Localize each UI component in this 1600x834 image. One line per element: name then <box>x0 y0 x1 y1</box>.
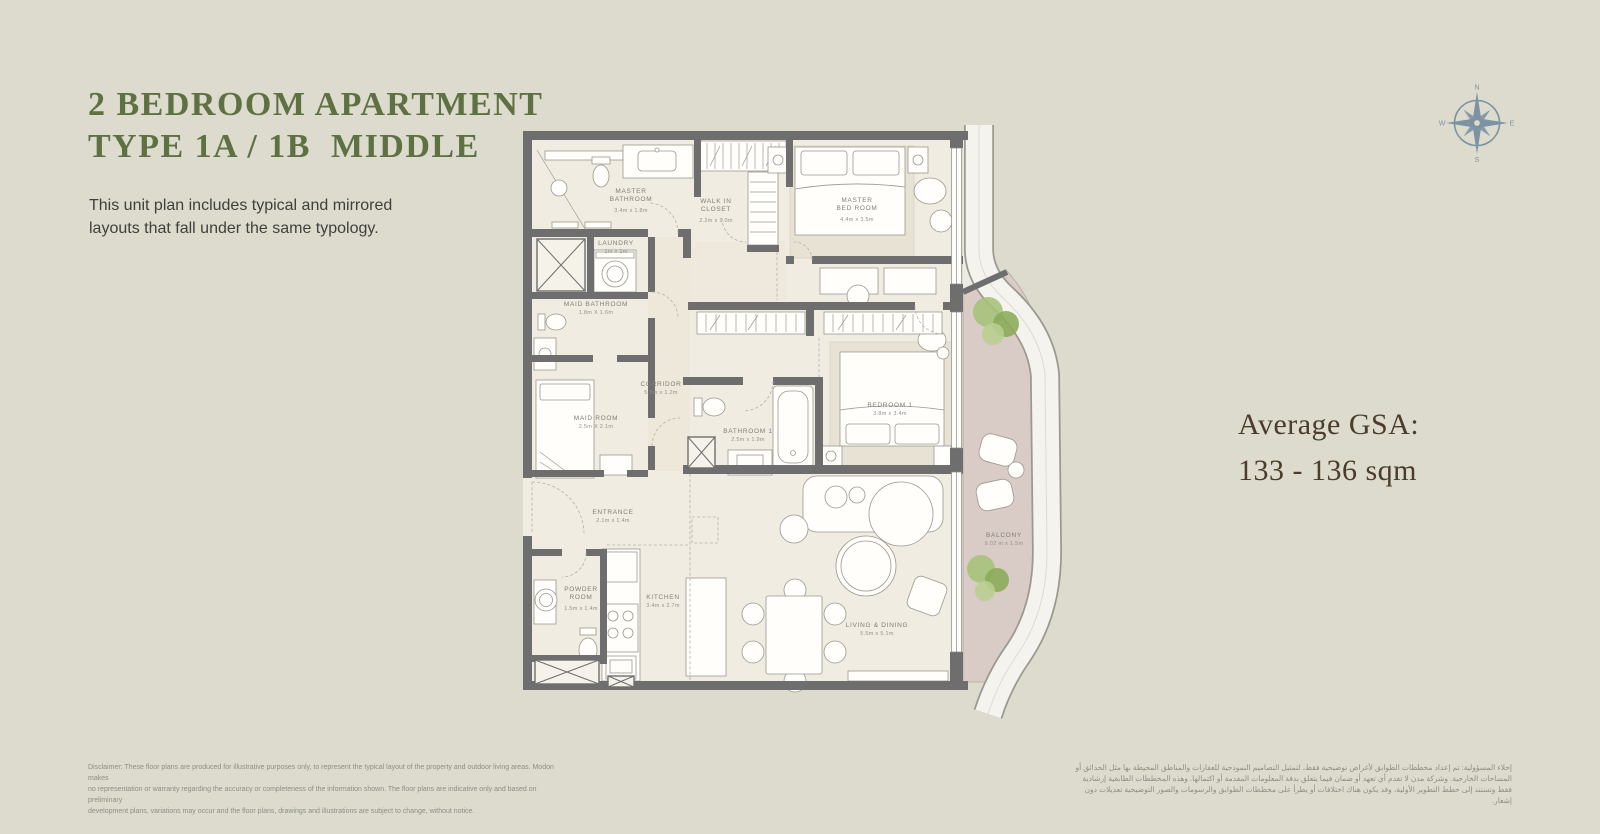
windows <box>952 148 962 652</box>
room-label-entrance: ENTRANCE <box>592 509 633 516</box>
room-dims-walk-in-closet: 2.2m x 1.0m <box>699 218 733 224</box>
room-dims-maid-bathroom: 1.8m X 1.6m <box>579 310 614 316</box>
typology-note-line-1: This unit plan includes typical and mirr… <box>89 194 392 217</box>
compass-s-label: S <box>1475 157 1480 163</box>
room-dims-maid-room: 2.5m X 2.1m <box>579 424 614 430</box>
room-label-balcony: BALCONY <box>986 532 1022 539</box>
disclaimer-line-ar: فقط وتستند إلى خطط التطوير الأولية، وقد … <box>1072 784 1512 806</box>
room-dims-master-bedroom: 4.4m x 3.5m <box>840 217 874 223</box>
room-dims-bedroom-1: 3.8m x 3.4m <box>873 411 907 417</box>
room-label-master-bathroom: MASTERBATHROOM <box>610 188 653 203</box>
room-label-kitchen: KITCHEN <box>646 594 679 601</box>
disclaimer-arabic: إخلاء المسؤولية: تم إعداد مخططات الطوابق… <box>1072 762 1512 806</box>
room-dims-powder-room: 1.5m x 1.4m <box>564 606 598 612</box>
brochure-page: 2 BEDROOM APARTMENT TYPE 1A / 1B MIDDLE … <box>0 0 1600 834</box>
title-line-2: TYPE 1A / 1B MIDDLE <box>88 126 543 168</box>
disclaimer-line-ar: المساحات الخارجية. وشركة مدن لا تقدم أي … <box>1072 773 1512 784</box>
average-gsa: Average GSA: 133 - 136 sqm <box>1238 402 1419 494</box>
typology-note: This unit plan includes typical and mirr… <box>89 194 392 240</box>
title-line-1: 2 BEDROOM APARTMENT <box>88 84 543 126</box>
window-icon <box>952 312 962 448</box>
compass-icon: N E S W <box>1437 83 1517 163</box>
room-dims-corridor: 5.5m x 1.2m <box>644 390 678 396</box>
room-label-walk-in-closet: WALK INCLOSET <box>700 198 731 213</box>
compass-n-label: N <box>1474 85 1479 92</box>
room-dims-entrance: 2.1m x 1.4m <box>596 518 630 524</box>
compass-w-label: W <box>1439 121 1446 128</box>
window-icon <box>952 148 962 284</box>
room-label-corridor: CORRIDOR <box>641 381 682 388</box>
room-label-master-bedroom: MASTERBED ROOM <box>837 197 878 212</box>
disclaimer-line: no representation or warranty regarding … <box>88 784 558 806</box>
room-dims-kitchen: 3.4m x 2.7m <box>646 603 680 609</box>
room-label-maid-room: MAID ROOM <box>574 415 619 422</box>
disclaimer-line-ar: إخلاء المسؤولية: تم إعداد مخططات الطوابق… <box>1072 762 1512 773</box>
disclaimer-line: Disclaimer: These floor plans are produc… <box>88 762 558 784</box>
disclaimer-english: Disclaimer: These floor plans are produc… <box>88 762 558 817</box>
room-label-maid-bathroom: MAID BATHROOM <box>564 301 628 308</box>
room-label-laundry: LAUNDRY <box>598 240 634 247</box>
room-dims-master-bathroom: 3.4m x 1.8m <box>614 208 648 214</box>
room-label-living-dining: LIVING & DINING <box>846 622 909 629</box>
gsa-label: Average GSA: <box>1238 402 1419 448</box>
room-dims-balcony: 9.02 m x 1.5m <box>985 541 1024 547</box>
room-label-bedroom-1: BEDROOM 1 <box>867 402 912 409</box>
page-title: 2 BEDROOM APARTMENT TYPE 1A / 1B MIDDLE <box>88 84 543 168</box>
laundry-machine <box>594 250 636 292</box>
room-label-bathroom-1: BATHROOM 1 <box>723 428 773 435</box>
room-dims-laundry: 1m x 1m <box>604 249 627 255</box>
room-dims-living-dining: 5.5m x 5.1m <box>860 631 894 637</box>
typology-note-line-2: layouts that fall under the same typolog… <box>89 217 392 240</box>
disclaimer-line: development plans, variations may occur … <box>88 806 558 817</box>
window-icon <box>952 472 962 652</box>
room-dims-bathroom-1: 2.5m x 1.9m <box>731 437 765 443</box>
compass-e-label: E <box>1510 121 1515 128</box>
gsa-value: 133 - 136 sqm <box>1238 448 1419 494</box>
floor-plan: MASTERBATHROOM 3.4m x 1.8m WALK INCLOSET… <box>500 105 1100 730</box>
